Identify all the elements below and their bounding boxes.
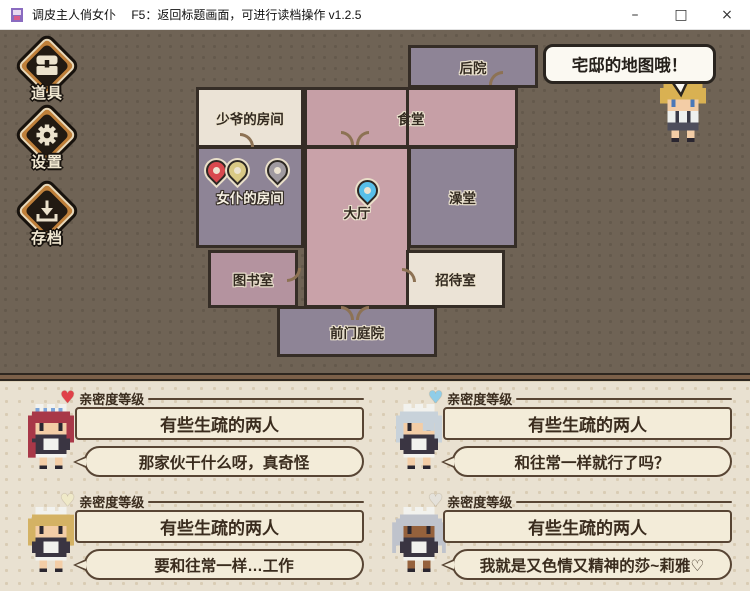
maid-status-panel: ♥ 亲密度等级 有些生疏的两人 要和往常一样…工作 [18,493,368,587]
settings-button[interactable]: 设置 [18,109,76,175]
room-label: 澡堂 [449,187,476,207]
window-titlebar: 调皮主人俏女仆 F5：返回标题画面，可进行读档操作 v1.2.5 – □ × [0,0,750,30]
dialogue-text: 那家伙干什么呀，真奇怪 [139,451,310,473]
intimacy-level-text: 有些生疏的两人 [528,514,647,539]
room-dining-hall[interactable]: 食堂 [304,87,518,148]
dialogue-text: 要和往常一样…工作 [154,554,294,576]
maid-status-panel: ♥ 亲密度等级 有些生疏的两人 那家伙干什么呀，真奇怪 [18,390,368,484]
intimacy-label: 亲密度等级 [79,492,144,511]
room-label: 图书室 [233,269,274,289]
room-library[interactable]: 图书室 [208,250,298,308]
room-label: 少爷的房间 [216,108,284,128]
room-backyard[interactable]: 后院 [408,45,538,88]
maid-status-panel: ♥ 亲密度等级 有些生疏的两人 和往常一样就行了吗？ [386,390,736,484]
dialogue-bubble: 那家伙干什么呀，真奇怪 [84,446,364,477]
app-icon [9,7,25,23]
intimacy-level-text: 有些生疏的两人 [160,411,279,436]
bubble-tail [441,456,454,468]
map-speech-bubble-text: 宅邸的地图哦！ [572,52,688,76]
intimacy-header: ♥ 亲密度等级 [60,390,364,406]
settings-button-label: 设置 [18,151,76,172]
bubble-tail [73,456,86,468]
double-door-icon [341,306,369,321]
heart-icon: ♥ [428,493,443,509]
game-map-area: 道具 设置 存档 后院 少爷的房间 食 [0,30,750,373]
intimacy-level-box: 有些生疏的两人 [443,407,732,440]
intimacy-level-box: 有些生疏的两人 [443,510,732,543]
dining-hall-wall [406,87,409,148]
status-panel-area: ♥ 亲密度等级 有些生疏的两人 那家伙干什么呀，真奇怪 ♥ 亲密度等级 有些生疏… [0,382,750,591]
close-button[interactable]: × [704,0,750,30]
dialogue-text: 和往常一样就行了吗？ [514,451,669,473]
room-label: 后院 [460,57,487,77]
door-icon [287,268,301,282]
save-button[interactable]: 存档 [18,185,76,251]
room-label: 女仆的房间 [216,187,284,207]
dark-skinned-maid-sprite [392,507,446,576]
blonde-maid-sprite [24,507,78,576]
room-label: 前门庭院 [330,322,384,342]
intimacy-level-box: 有些生疏的两人 [75,510,364,543]
intimacy-level-text: 有些生疏的两人 [528,411,647,436]
maid-status-panel: ♥ 亲密度等级 有些生疏的两人 我就是又色情又精神的莎~莉雅♡ [386,493,736,587]
dialogue-bubble: 和往常一样就行了吗？ [452,446,732,477]
dialogue-bubble: 要和往常一样…工作 [84,549,364,580]
heart-icon: ♥ [428,390,443,406]
red-haired-maid-sprite [24,404,78,473]
room-label: 食堂 [398,108,425,128]
bubble-tail [441,559,454,571]
room-label: 招待室 [435,269,476,289]
window-title: 调皮主人俏女仆 F5：返回标题画面，可进行读档操作 v1.2.5 [32,6,361,23]
section-divider [0,373,750,382]
heart-icon: ♥ [60,390,75,406]
chest-icon [35,54,59,78]
room-main-hall[interactable]: 大厅 [304,146,410,308]
save-button-label: 存档 [18,227,76,248]
room-bathhouse[interactable]: 澡堂 [408,146,517,248]
save-icon [35,199,59,223]
intimacy-level-box: 有些生疏的两人 [75,407,364,440]
intimacy-label: 亲密度等级 [79,389,144,408]
double-door-icon [341,131,369,146]
map-speech-bubble: 宅邸的地图哦！ [543,44,716,84]
maximize-button[interactable]: □ [658,0,704,30]
bubble-tail [73,559,86,571]
items-button[interactable]: 道具 [18,40,76,106]
intimacy-label: 亲密度等级 [447,389,512,408]
dialogue-text: 我就是又色情又精神的莎~莉雅♡ [480,554,704,576]
dialogue-bubble: 我就是又色情又精神的莎~莉雅♡ [452,549,732,580]
intimacy-header: ♥ 亲密度等级 [60,493,364,509]
heart-icon: ♥ [60,493,75,509]
intimacy-level-text: 有些生疏的两人 [160,514,279,539]
intimacy-header: ♥ 亲密度等级 [428,390,732,406]
items-button-label: 道具 [18,82,76,103]
intimacy-header: ♥ 亲密度等级 [428,493,732,509]
gear-icon [35,123,59,147]
intimacy-label: 亲密度等级 [447,492,512,511]
silver-haired-maid-sprite [392,404,446,473]
room-reception[interactable]: 招待室 [406,250,505,308]
minimize-button[interactable]: – [612,0,658,30]
